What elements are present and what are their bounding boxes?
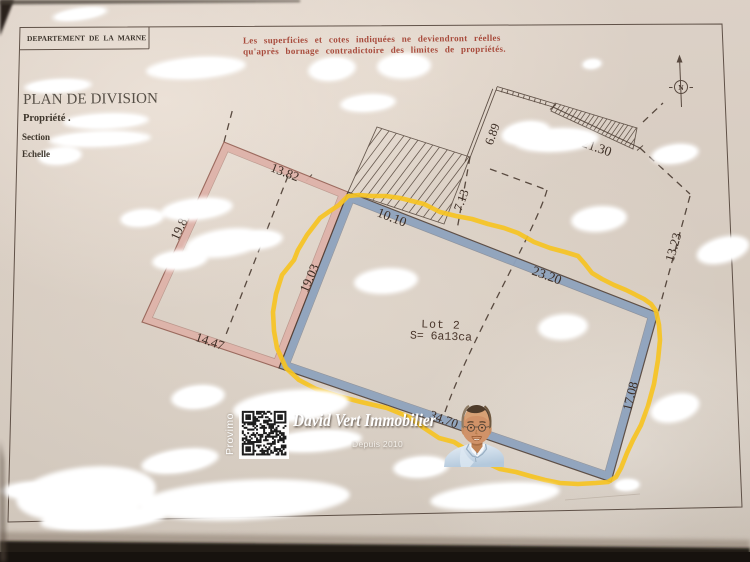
- svg-text:13.23: 13.23: [662, 231, 684, 263]
- svg-text:17.08: 17.08: [619, 380, 641, 412]
- svg-text:23.20: 23.20: [530, 263, 564, 288]
- svg-text:13.82: 13.82: [269, 160, 302, 184]
- svg-text:7.13: 7.13: [451, 187, 472, 212]
- svg-text:N: N: [678, 83, 684, 92]
- svg-text:10.10: 10.10: [375, 205, 409, 230]
- svg-text:14.47: 14.47: [194, 329, 227, 353]
- svg-text:S= 6a13ca: S= 6a13ca: [410, 329, 473, 344]
- svg-text:6.89: 6.89: [482, 121, 503, 146]
